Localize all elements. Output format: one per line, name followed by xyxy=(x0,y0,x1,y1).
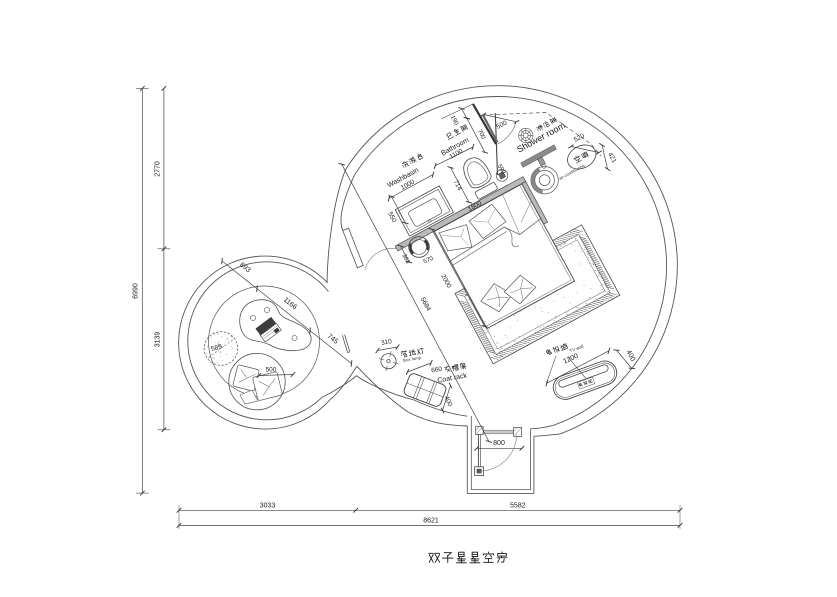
svg-text:6990: 6990 xyxy=(133,283,140,299)
svg-text:5582: 5582 xyxy=(510,502,526,509)
svg-text:3033: 3033 xyxy=(260,502,276,509)
svg-text:3139: 3139 xyxy=(155,332,162,348)
svg-text:800: 800 xyxy=(493,440,505,447)
svg-text:2770: 2770 xyxy=(155,161,162,177)
svg-text:500: 500 xyxy=(266,367,277,374)
svg-text:8621: 8621 xyxy=(423,517,439,524)
